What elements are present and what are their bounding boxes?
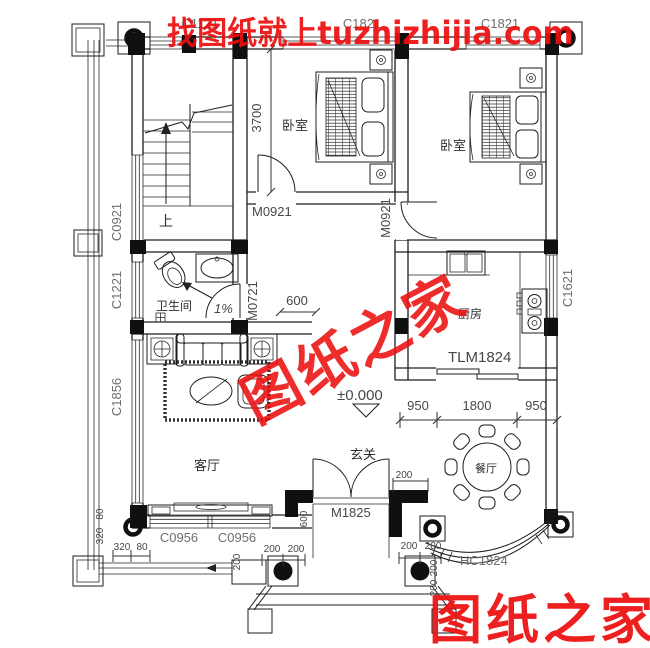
dim-600-porch: 600 bbox=[299, 510, 310, 527]
room-bathroom: 卫生间 bbox=[156, 299, 192, 313]
floor-drain bbox=[156, 313, 165, 322]
bed-left bbox=[316, 50, 393, 184]
window-left-stairs-c0921 bbox=[131, 155, 144, 250]
dim-200-e: 200 bbox=[429, 559, 440, 576]
label-window-c1621: C1621 bbox=[560, 269, 575, 307]
label-window-c1221: C1221 bbox=[109, 271, 124, 309]
dim-1800: 1800 bbox=[463, 398, 492, 413]
door-bedroom-left bbox=[258, 155, 295, 192]
room-foyer: 玄关 bbox=[350, 448, 376, 463]
label-bay-hc1824: HC1824 bbox=[460, 553, 508, 568]
watermark-top: 找图纸就上tuzhizhijia.com bbox=[167, 8, 574, 54]
dim-200-d: 200 bbox=[425, 541, 442, 552]
direction-arrow bbox=[206, 564, 216, 572]
bathroom-sink bbox=[196, 254, 238, 282]
room-bedroom-right: 卧室 bbox=[440, 138, 466, 154]
bed-right bbox=[470, 68, 546, 184]
label-window-c0956-1: C0956 bbox=[160, 530, 198, 545]
dim-80-v: 80 bbox=[95, 508, 106, 520]
dim-200-a: 200 bbox=[264, 544, 281, 555]
kitchen-stove bbox=[517, 289, 547, 333]
room-living: 客厅 bbox=[194, 458, 220, 474]
label-door-m1825: M1825 bbox=[331, 505, 371, 520]
label-door-m0921-left: M0921 bbox=[252, 204, 292, 219]
dim-320-v: 320 bbox=[95, 527, 106, 544]
staircase bbox=[143, 104, 233, 206]
dim-950-right: 950 bbox=[525, 398, 547, 413]
label-door-m0921-right: M0921 bbox=[378, 198, 393, 238]
dim-80-h: 80 bbox=[136, 542, 148, 553]
coffee-table bbox=[190, 377, 232, 405]
window-left-bathroom-c1221 bbox=[131, 262, 144, 318]
level-marker bbox=[353, 404, 379, 417]
dim-950-left: 950 bbox=[407, 398, 429, 413]
label-window-c0921: C0921 bbox=[109, 203, 124, 241]
dim-200-c: 200 bbox=[401, 541, 418, 552]
dim-200-g: 200 bbox=[232, 553, 243, 570]
room-bedroom-left: 卧室 bbox=[282, 118, 308, 134]
floor-plan-page: C1121 C1821 C1821 C0921 C1221 C1856 C162… bbox=[0, 0, 650, 648]
dim-slope-1pct: 1% bbox=[214, 301, 233, 316]
dim-3700: 3700 bbox=[249, 104, 264, 133]
dim-600-corridor: 600 bbox=[286, 293, 308, 308]
watermark-bottom-right: 图纸之家 bbox=[429, 578, 650, 648]
label-door-m0721: M0721 bbox=[245, 281, 260, 321]
stair-up-label: 上 bbox=[159, 214, 173, 230]
dim-200-b: 200 bbox=[288, 544, 305, 555]
room-dining: 餐厅 bbox=[475, 461, 497, 475]
slope-arrow bbox=[182, 282, 212, 298]
dim-320-h: 320 bbox=[114, 542, 131, 553]
entry-steps bbox=[248, 586, 456, 633]
window-left-living-c1856 bbox=[131, 340, 144, 503]
label-door-tlm1824: TLM1824 bbox=[448, 349, 511, 366]
dim-200-entry: 200 bbox=[396, 470, 413, 481]
label-window-c0956-2: C0956 bbox=[218, 530, 256, 545]
label-window-c1856: C1856 bbox=[109, 378, 124, 416]
